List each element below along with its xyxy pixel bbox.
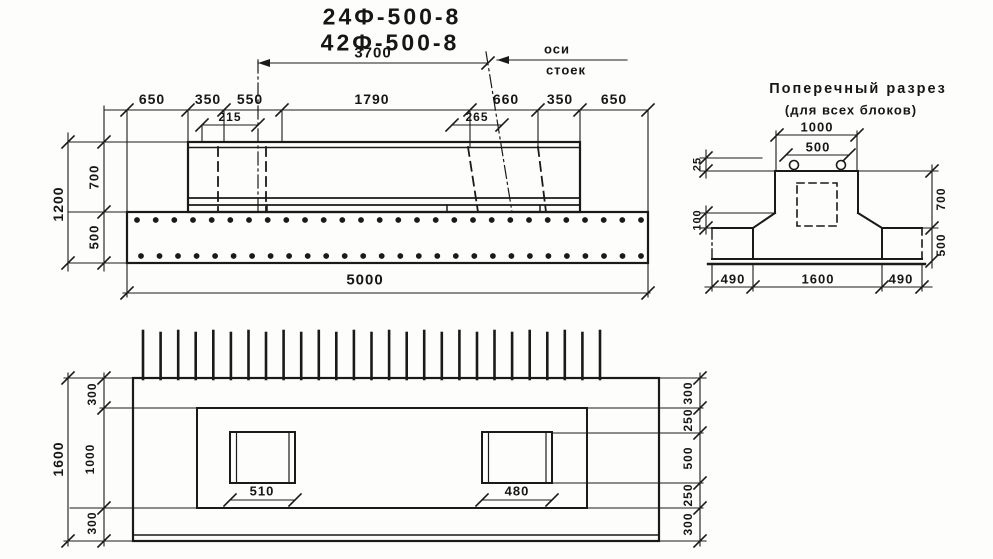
- dim-300-plan-bl: 300: [86, 511, 98, 534]
- axis-label-stoek: стоек: [546, 64, 586, 77]
- section-dimensions: [700, 131, 938, 291]
- dim-3700: 3700: [354, 46, 391, 61]
- socket-hidden-outline: [797, 183, 837, 226]
- plan-sockets: [230, 432, 552, 483]
- dim-1000: 1000: [801, 121, 834, 134]
- dim-500-top: 500: [806, 141, 831, 154]
- dim-510: 510: [250, 485, 275, 498]
- section-title: Поперечный разрез: [769, 82, 947, 97]
- hidden-post-lines: [218, 147, 546, 212]
- dim-660: 660: [493, 92, 519, 106]
- dim-250-plan-t: 250: [682, 408, 694, 431]
- dim-1200: 1200: [51, 186, 65, 221]
- cross-section-view: [700, 131, 938, 291]
- dim-700-left: 700: [88, 165, 101, 190]
- dim-650-right: 650: [601, 92, 627, 106]
- elevation-view: [68, 52, 650, 297]
- plan-view: [64, 373, 706, 546]
- rebar-spikes: [143, 331, 600, 379]
- post-axis-lines: [258, 52, 512, 212]
- dim-480: 480: [505, 485, 530, 498]
- dim-350-right: 350: [547, 92, 573, 106]
- axis-label-osi: оси: [544, 43, 570, 56]
- dim-25: 25: [693, 157, 704, 171]
- section-subtitle: (для всех блоков): [785, 104, 917, 117]
- plan-dimensions: [64, 373, 706, 546]
- dim-700-section: 700: [935, 187, 947, 210]
- dim-100: 100: [693, 209, 704, 230]
- dim-550: 550: [237, 92, 263, 106]
- dim-5000: 5000: [346, 273, 383, 288]
- dim-500-section: 500: [935, 233, 947, 256]
- dim-490-left: 490: [721, 273, 746, 286]
- dim-1000-plan: 1000: [84, 444, 96, 475]
- dim-1600-section: 1600: [802, 273, 835, 286]
- rebar-dots: [134, 217, 644, 259]
- block-mark-title-1: 24Ф-500-8: [323, 6, 462, 29]
- dim-1600-plan: 1600: [51, 441, 65, 476]
- dim-1790: 1790: [354, 92, 389, 106]
- dim-265: 265: [465, 111, 488, 123]
- blueprint-canvas: 24Ф-500-8 42Ф-500-8 3700 оси стоек 650 3…: [0, 0, 993, 559]
- dim-350-left: 350: [195, 92, 221, 106]
- dim-500-left: 500: [88, 225, 101, 250]
- dim-215: 215: [218, 111, 241, 123]
- dim-500-plan: 500: [682, 446, 694, 469]
- dim-250-plan-b: 250: [682, 483, 694, 506]
- dim-650-left: 650: [139, 92, 165, 106]
- dim-490-right: 490: [889, 273, 914, 286]
- dim-300-plan-tr: 300: [682, 381, 694, 404]
- lifting-loops: [790, 161, 846, 170]
- dim-300-plan-br: 300: [682, 512, 694, 535]
- dim-300-plan-tl: 300: [86, 382, 98, 405]
